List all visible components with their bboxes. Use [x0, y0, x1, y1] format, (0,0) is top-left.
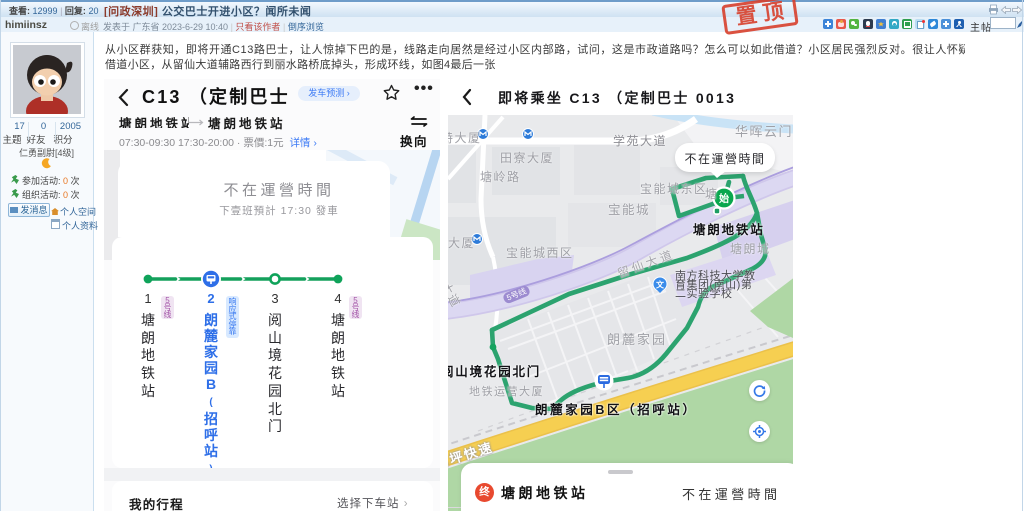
svg-text:始: 始	[719, 192, 729, 205]
svg-text:文: 文	[656, 280, 665, 290]
